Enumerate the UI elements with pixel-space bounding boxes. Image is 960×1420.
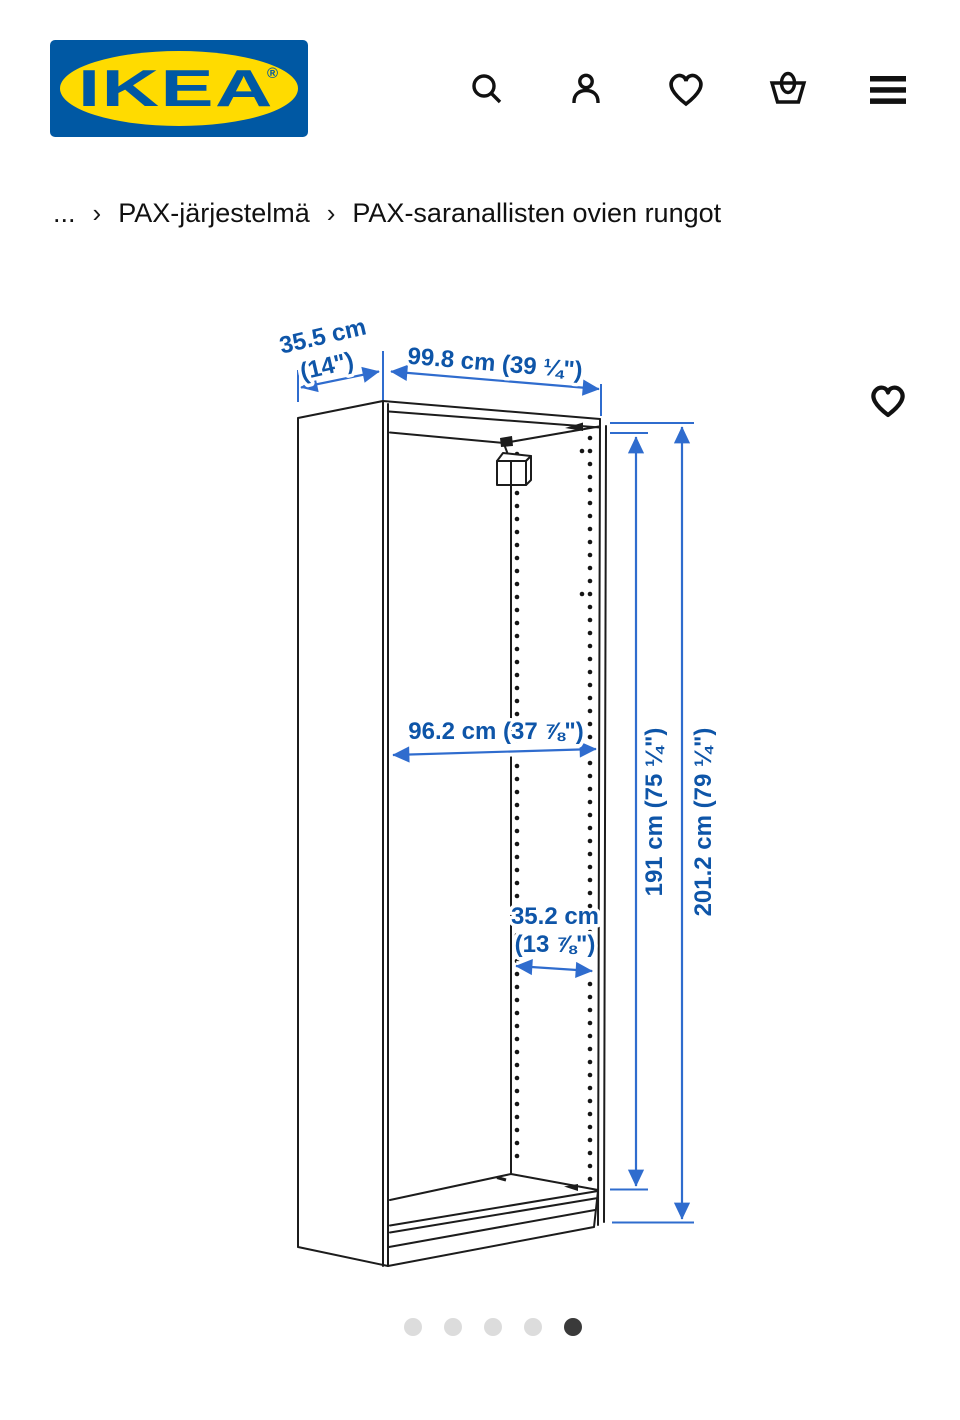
search-button[interactable] (463, 66, 511, 114)
breadcrumb-current-page[interactable]: PAX-saranallisten ovien rungot (352, 196, 721, 230)
profile-icon (564, 68, 608, 112)
dimension-inner-depth: 35.2 cm (13 ⅞") (511, 903, 599, 971)
breadcrumb-separator-icon: › (327, 196, 336, 230)
ikea-logo[interactable]: IKEA ® (50, 40, 308, 137)
wardrobe-frame-drawing (298, 401, 606, 1266)
carousel-dot-3[interactable] (484, 1318, 502, 1336)
carousel-dot-5-active[interactable] (564, 1318, 582, 1336)
carousel-dot-1[interactable] (404, 1318, 422, 1336)
breadcrumb-pax-system[interactable]: PAX-järjestelmä (118, 196, 310, 230)
breadcrumb-separator-icon: › (93, 196, 102, 230)
basket-button[interactable] (764, 66, 812, 114)
search-icon (465, 68, 509, 112)
back-panel-bracket (497, 423, 583, 1192)
menu-button[interactable] (864, 66, 912, 114)
shelf-pin-holes (515, 436, 593, 1182)
favorite-button[interactable] (873, 388, 902, 415)
dimension-depth: 35.5 cm (14") (277, 313, 383, 402)
heart-icon (873, 388, 902, 415)
product-dimension-image: 35.5 cm (14") 99.8 cm (39 ¼") 96.2 cm (3… (0, 280, 960, 1360)
header: IKEA ® (0, 0, 960, 160)
logo-registered-mark: ® (267, 65, 278, 82)
carousel-dots (404, 1318, 582, 1336)
hamburger-menu-icon (866, 68, 910, 112)
inner-height-label: 191 cm (75 ¼") (641, 728, 668, 897)
inner-depth-label-cm: 35.2 cm (511, 903, 599, 930)
basket-icon (766, 68, 810, 112)
logo-text: IKEA (78, 60, 274, 118)
favorites-heart-icon (664, 68, 708, 112)
carousel-dot-4[interactable] (524, 1318, 542, 1336)
carousel-dot-2[interactable] (444, 1318, 462, 1336)
inner-width-label: 96.2 cm (37 ⅞") (408, 718, 583, 745)
dimension-inner-height: 191 cm (75 ¼") (610, 433, 668, 1190)
outer-height-label: 201.2 cm (79 ¼") (690, 728, 717, 917)
breadcrumb-ellipsis[interactable]: ... (53, 196, 76, 230)
favorites-button[interactable] (662, 66, 710, 114)
breadcrumb: ... › PAX-järjestelmä › PAX-saranalliste… (53, 196, 721, 230)
profile-button[interactable] (562, 66, 610, 114)
dimension-inner-width: 96.2 cm (37 ⅞") (393, 718, 596, 755)
inner-depth-label-inches: (13 ⅞") (515, 931, 596, 958)
